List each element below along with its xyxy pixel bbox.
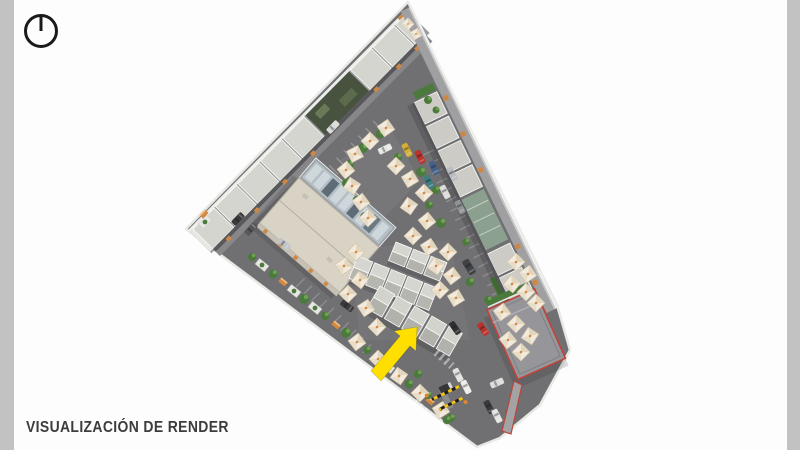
slide-title: VISUALIZACIÓN DE RENDER xyxy=(26,419,229,437)
slide: VISUALIZACIÓN DE RENDER xyxy=(0,0,800,450)
site-plan-render xyxy=(0,0,800,450)
